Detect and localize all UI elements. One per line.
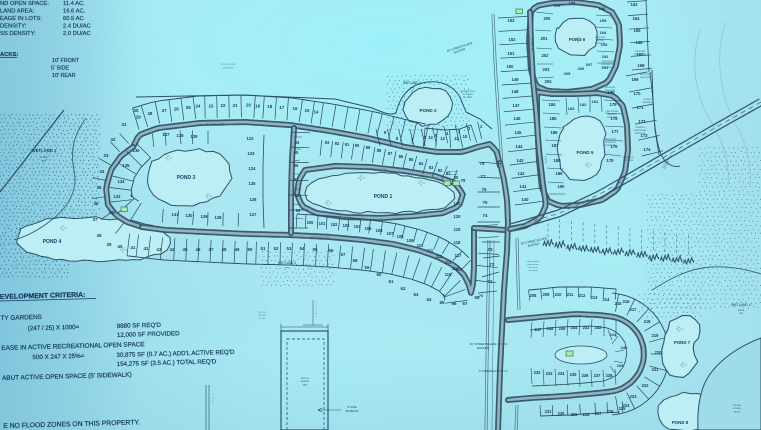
svg-text:149: 149 <box>512 77 520 82</box>
svg-text:148: 148 <box>512 89 520 94</box>
svg-text:206: 206 <box>578 66 585 71</box>
svg-text:xx xxxxxxx: xx xxxxxxx <box>463 94 475 96</box>
svg-text:57: 57 <box>341 252 346 257</box>
svg-text:EAGE IN LOTS:: EAGE IN LOTS: <box>0 16 42 22</box>
svg-text:xxxx xxx: xxxx xxx <box>568 314 581 317</box>
svg-text:15: 15 <box>305 108 310 113</box>
svg-text:228: 228 <box>583 412 591 417</box>
svg-text:236: 236 <box>582 373 590 378</box>
svg-text:181: 181 <box>592 99 599 104</box>
svg-text:235: 235 <box>570 372 578 377</box>
svg-text:xxxxxxxxx: xxxxxxxxx <box>595 37 606 39</box>
svg-text:36: 36 <box>94 201 99 206</box>
svg-text:164: 164 <box>633 16 641 21</box>
svg-text:208: 208 <box>530 293 538 298</box>
svg-text:199: 199 <box>554 3 561 8</box>
svg-text:BUFFER: BUFFER <box>477 346 490 350</box>
svg-text:56: 56 <box>329 248 334 253</box>
svg-text:201: 201 <box>541 36 549 41</box>
svg-text:42: 42 <box>144 246 149 251</box>
svg-text:211: 211 <box>567 292 574 297</box>
svg-text:142: 142 <box>518 171 526 176</box>
svg-text:12: 12 <box>440 136 445 141</box>
svg-text:194: 194 <box>600 30 607 35</box>
svg-text:146: 146 <box>514 116 522 121</box>
svg-text:188: 188 <box>554 158 562 163</box>
svg-text:33: 33 <box>104 153 109 158</box>
svg-text:136: 136 <box>133 148 141 153</box>
svg-text:xxxxx xx: xxxxx xx <box>530 39 533 52</box>
svg-text:213: 213 <box>591 295 599 300</box>
svg-text:183: 183 <box>568 106 575 111</box>
svg-text:9880 SF REQ'D: 9880 SF REQ'D <box>117 322 162 330</box>
svg-text:32: 32 <box>111 137 116 142</box>
svg-text:53: 53 <box>287 246 292 251</box>
svg-text:182: 182 <box>580 102 587 107</box>
svg-text:100: 100 <box>307 220 315 225</box>
svg-text:10' FRONT: 10' FRONT <box>52 58 80 64</box>
svg-text:243: 243 <box>583 325 591 330</box>
svg-text:WETLAND 1: WETLAND 1 <box>32 148 57 153</box>
svg-text:119: 119 <box>454 227 461 232</box>
svg-text:xx xxxxx: xx xxxxx <box>464 97 474 99</box>
svg-text:xxxx xxxxxxx: xxxx xxxxxxx <box>527 261 541 263</box>
svg-text:202: 202 <box>542 53 550 58</box>
svg-text:49: 49 <box>235 247 240 252</box>
svg-text:233: 233 <box>546 371 554 376</box>
svg-text:247: 247 <box>535 327 543 332</box>
svg-text:26: 26 <box>174 106 179 111</box>
svg-text:153: 153 <box>508 18 516 23</box>
svg-text:212: 212 <box>579 293 587 298</box>
svg-text:145: 145 <box>515 130 523 135</box>
svg-text:40: 40 <box>118 244 123 249</box>
svg-text:79: 79 <box>461 178 466 183</box>
svg-text:78: 78 <box>480 161 485 166</box>
svg-text:77: 77 <box>481 174 486 179</box>
svg-text:66: 66 <box>452 301 457 306</box>
svg-text:231: 231 <box>545 409 553 414</box>
svg-text:xxxxxxxxxx: xxxxxxxxxx <box>604 142 616 144</box>
svg-text:xxxxxxxxx: xxxxxxxxx <box>635 51 646 53</box>
svg-text:POND 3: POND 3 <box>177 175 196 181</box>
svg-text:239: 239 <box>617 363 624 368</box>
svg-text:39: 39 <box>107 242 112 247</box>
svg-text:75: 75 <box>483 200 488 205</box>
svg-text:43: 43 <box>157 247 162 252</box>
svg-text:44: 44 <box>170 247 175 252</box>
svg-text:xxxxxxxxx: xxxxxxxxx <box>595 43 606 45</box>
svg-text:TY GARDENS: TY GARDENS <box>0 314 42 322</box>
svg-text:67: 67 <box>463 301 468 306</box>
svg-text:95: 95 <box>294 150 299 155</box>
svg-text:94: 94 <box>295 140 300 145</box>
svg-text:19: 19 <box>255 103 260 108</box>
svg-text:237: 237 <box>594 373 602 378</box>
svg-text:152: 152 <box>509 37 517 42</box>
svg-text:88: 88 <box>377 148 382 153</box>
svg-text:55: 55 <box>313 247 318 252</box>
svg-text:xxx xxxx: xxx xxxx <box>258 315 268 317</box>
svg-text:83: 83 <box>429 165 434 170</box>
svg-text:45: 45 <box>183 247 188 252</box>
svg-text:POND 8: POND 8 <box>672 420 689 425</box>
svg-text:xxxxxxxxx: xxxxxxxxx <box>623 160 634 162</box>
svg-text:143: 143 <box>517 158 525 163</box>
svg-text:74: 74 <box>483 213 488 218</box>
svg-text:104: 104 <box>354 224 362 229</box>
svg-text:xxxxx xxx: xxxxx xxx <box>373 168 388 171</box>
svg-text:ND OPEN SPACE:: ND OPEN SPACE: <box>0 1 49 7</box>
svg-text:17: 17 <box>279 105 284 110</box>
svg-text:137: 137 <box>163 132 171 137</box>
svg-text:xxxxxxxxxxx: xxxxxxxxxxx <box>602 67 615 69</box>
svg-text:209: 209 <box>543 292 551 297</box>
svg-text:xxxxxxxx: xxxxxxxx <box>635 127 645 129</box>
svg-text:16: 16 <box>293 106 298 111</box>
svg-text:27: 27 <box>162 108 167 113</box>
svg-text:WETLAND 2: WETLAND 2 <box>403 81 421 85</box>
svg-text:xxxxxxxx: xxxxxxxx <box>223 66 234 69</box>
svg-text:xxxxxxxxx: xxxxxxxxx <box>635 133 646 135</box>
svg-text:xxxxxxxx: xxxxxxxx <box>605 93 615 95</box>
svg-text:31: 31 <box>122 122 127 127</box>
svg-text:175: 175 <box>607 158 615 163</box>
svg-text:198: 198 <box>569 0 576 5</box>
svg-text:186: 186 <box>551 130 559 135</box>
svg-text:14: 14 <box>314 109 319 114</box>
svg-text:238: 238 <box>606 373 614 378</box>
svg-text:108: 108 <box>397 234 405 239</box>
svg-text:xxxxxx: xxxxxx <box>504 295 507 306</box>
svg-text:ACKS:: ACKS: <box>0 52 18 58</box>
svg-text:123: 123 <box>248 151 256 156</box>
svg-text:127: 127 <box>250 212 258 217</box>
svg-text:99: 99 <box>296 208 301 213</box>
svg-text:102: 102 <box>331 222 339 227</box>
svg-text:34: 34 <box>100 169 105 174</box>
svg-text:129: 129 <box>201 214 209 219</box>
svg-text:192: 192 <box>602 54 609 59</box>
svg-text:DENSITY:: DENSITY: <box>0 24 27 30</box>
svg-text:37: 37 <box>93 217 98 222</box>
svg-text:48: 48 <box>222 247 227 252</box>
svg-text:223: 223 <box>630 394 638 399</box>
svg-text:111: 111 <box>427 248 434 253</box>
svg-text:POND 5: POND 5 <box>576 150 594 155</box>
svg-text:225: 225 <box>619 406 627 411</box>
svg-text:50: 50 <box>248 247 253 252</box>
svg-text:122: 122 <box>247 136 255 141</box>
svg-text:118: 118 <box>454 240 461 245</box>
svg-text:22: 22 <box>221 103 226 108</box>
svg-text:133: 133 <box>114 194 122 199</box>
svg-text:105: 105 <box>365 226 373 231</box>
svg-text:POND 6: POND 6 <box>569 37 586 42</box>
svg-text:500 X 247 X 25%=: 500 X 247 X 25%= <box>32 353 84 361</box>
svg-text:246: 246 <box>547 326 555 331</box>
svg-text:207: 207 <box>586 62 593 67</box>
svg-text:16.6 AC.: 16.6 AC. <box>63 9 86 15</box>
svg-text:13: 13 <box>428 135 433 140</box>
svg-text:xxxxxxxxx: xxxxxxxxx <box>607 117 618 119</box>
svg-text:xxxxxxx xxxx: xxxxxxx xxxx <box>205 122 225 125</box>
svg-text:130: 130 <box>186 213 194 218</box>
svg-text:SS DENSITY:: SS DENSITY: <box>0 31 36 37</box>
svg-text:2.4 DU/AC: 2.4 DU/AC <box>63 24 91 30</box>
svg-text:xxxxxxxxxxx: xxxxxxxxxxx <box>604 139 617 141</box>
svg-text:85: 85 <box>409 157 414 162</box>
svg-text:SETBACK: SETBACK <box>345 409 358 413</box>
svg-text:38: 38 <box>97 233 102 238</box>
svg-text:187: 187 <box>552 143 560 148</box>
svg-text:120: 120 <box>454 214 462 219</box>
svg-text:124: 124 <box>249 166 257 171</box>
svg-text:62: 62 <box>401 286 406 291</box>
svg-text:54: 54 <box>300 246 305 251</box>
svg-text:xxxx xx: xxxx xx <box>258 312 266 314</box>
svg-text:xxxxxxxxxxx: xxxxxxxxxxx <box>606 111 619 113</box>
svg-text:222: 222 <box>642 383 650 388</box>
svg-text:126: 126 <box>250 197 258 202</box>
svg-text:90: 90 <box>355 143 360 148</box>
svg-text:WETLAND 4: WETLAND 4 <box>731 303 751 307</box>
svg-text:60: 60 <box>377 272 382 277</box>
svg-text:177: 177 <box>612 129 620 134</box>
svg-text:97: 97 <box>294 177 299 182</box>
svg-text:240: 240 <box>621 345 628 350</box>
svg-text:xxxxxxxxx: xxxxxxxxx <box>640 74 651 76</box>
svg-text:xxxxxxxxxxx: xxxxxxxxxxx <box>634 130 647 132</box>
svg-text:51: 51 <box>261 246 266 251</box>
svg-text:28: 28 <box>147 111 152 116</box>
svg-text:21: 21 <box>233 103 238 108</box>
svg-text:xxxxxxxxxx: xxxxxxxxxx <box>622 157 634 159</box>
svg-text:52: 52 <box>274 246 279 251</box>
svg-text:150: 150 <box>507 64 515 69</box>
svg-text:96: 96 <box>294 163 299 168</box>
svg-text:92: 92 <box>335 141 340 146</box>
svg-text:110: 110 <box>417 243 424 248</box>
svg-text:xxx xx: xxx xx <box>734 410 741 413</box>
svg-text:107: 107 <box>387 231 395 236</box>
svg-text:141: 141 <box>520 184 528 189</box>
svg-text:xxxx xxxx: xxxx xxxx <box>528 267 538 269</box>
svg-text:70: 70 <box>479 293 483 298</box>
svg-text:232: 232 <box>534 370 542 375</box>
svg-text:xxxxxxxxxxx: xxxxxxxxxxx <box>634 54 647 56</box>
svg-text:215: 215 <box>615 301 623 306</box>
svg-text:xxxxxxxxxx: xxxxxxxxxx <box>604 145 616 147</box>
svg-text:73: 73 <box>488 247 493 252</box>
svg-text:LAND AREA:: LAND AREA: <box>0 9 35 15</box>
svg-text:58: 58 <box>353 258 358 263</box>
svg-text:xxxxxxxxx: xxxxxxxxx <box>640 77 651 79</box>
svg-text:POND 2: POND 2 <box>419 108 437 113</box>
svg-text:5' SIDE: 5' SIDE <box>51 66 70 72</box>
svg-text:132: 132 <box>109 210 117 215</box>
svg-text:(247 / 25) X 1000=: (247 / 25) X 1000= <box>28 324 80 332</box>
svg-text:35: 35 <box>97 185 102 190</box>
svg-text:229: 229 <box>571 412 579 417</box>
svg-text:93: 93 <box>325 140 330 145</box>
svg-text:29: 29 <box>136 114 141 119</box>
svg-text:72: 72 <box>490 262 495 267</box>
svg-text:168: 168 <box>638 63 646 68</box>
svg-text:216: 216 <box>623 299 631 304</box>
svg-text:xxx xxxxx: xxx xxxxx <box>528 270 538 272</box>
svg-text:103: 103 <box>343 223 351 228</box>
svg-text:218: 218 <box>644 319 652 324</box>
svg-text:227: 227 <box>595 411 603 416</box>
svg-text:219: 219 <box>652 333 660 338</box>
svg-text:205: 205 <box>564 71 571 76</box>
svg-text:76: 76 <box>482 187 487 192</box>
svg-text:115: 115 <box>445 272 452 277</box>
svg-text:xxxxxxxxxx: xxxxxxxxxx <box>642 102 654 104</box>
svg-text:xxxxxxx xxx: xxxxxxx xxx <box>311 236 329 240</box>
svg-text:89: 89 <box>366 145 371 150</box>
svg-text:169: 169 <box>632 77 640 82</box>
svg-text:64: 64 <box>427 297 432 302</box>
svg-text:47: 47 <box>209 247 214 252</box>
svg-text:140: 140 <box>522 197 530 202</box>
svg-text:214: 214 <box>603 297 611 302</box>
svg-text:91: 91 <box>345 142 350 147</box>
svg-text:106: 106 <box>376 228 384 233</box>
svg-text:113: 113 <box>445 260 452 265</box>
svg-text:179: 179 <box>610 102 618 107</box>
svg-text:234: 234 <box>558 371 566 376</box>
svg-text:POND 4: POND 4 <box>43 239 62 245</box>
svg-text:174: 174 <box>644 147 652 152</box>
svg-text:200: 200 <box>544 16 552 21</box>
svg-text:xxxxxxxx: xxxxxxxx <box>643 99 653 101</box>
svg-text:25: 25 <box>186 105 191 110</box>
svg-text:147: 147 <box>513 103 521 108</box>
svg-text:109: 109 <box>407 238 415 243</box>
svg-text:xxxxxx xxx: xxxxxx xxx <box>447 171 458 173</box>
svg-text:86: 86 <box>399 154 404 159</box>
svg-text:xxxxxxxxx: xxxxxxxxx <box>605 90 616 92</box>
svg-text:101: 101 <box>319 221 327 226</box>
svg-text:185: 185 <box>550 116 558 121</box>
svg-text:242: 242 <box>595 325 603 330</box>
svg-text:114: 114 <box>452 266 459 271</box>
svg-text:170: 170 <box>634 91 642 96</box>
svg-text:210: 210 <box>555 292 563 297</box>
svg-text:xxxxxxxxx: xxxxxxxxx <box>605 87 616 89</box>
svg-text:190: 190 <box>558 184 566 189</box>
svg-text:xxxxxxx: xxxxxxx <box>596 40 605 42</box>
svg-text:POND 1: POND 1 <box>374 194 393 200</box>
svg-text:230: 230 <box>558 411 566 416</box>
svg-text:10: 10 <box>463 134 468 139</box>
svg-text:41: 41 <box>131 245 136 250</box>
svg-text:125: 125 <box>249 181 257 186</box>
svg-text:WETLAND 3: WETLAND 3 <box>278 261 296 265</box>
svg-text:244: 244 <box>571 325 579 330</box>
svg-text:203: 203 <box>543 67 551 72</box>
svg-text:139: 139 <box>191 134 199 139</box>
svg-text:POND 7: POND 7 <box>674 340 691 345</box>
svg-text:xx xxx: xx xxx <box>259 318 266 320</box>
svg-text:46: 46 <box>196 247 201 252</box>
svg-text:195: 195 <box>600 18 607 23</box>
svg-text:151: 151 <box>508 51 516 56</box>
svg-text:121: 121 <box>454 201 462 206</box>
svg-text:60.5 AC: 60.5 AC <box>63 16 84 22</box>
svg-text:2.0 DU/AC: 2.0 DU/AC <box>63 31 91 37</box>
svg-text:24: 24 <box>195 104 200 109</box>
svg-text:10' REAR: 10' REAR <box>52 73 76 79</box>
svg-text:112: 112 <box>436 254 443 259</box>
svg-text:20: 20 <box>246 103 251 108</box>
svg-text:63: 63 <box>414 292 419 297</box>
svg-text:135: 135 <box>123 163 131 168</box>
svg-text:87: 87 <box>388 151 393 156</box>
svg-text:189: 189 <box>556 171 564 176</box>
svg-text:xxxxxxxx: xxxxxxxx <box>607 114 617 116</box>
svg-text:204: 204 <box>545 79 553 84</box>
svg-text:144: 144 <box>516 144 524 149</box>
svg-text:23: 23 <box>208 103 213 108</box>
svg-text:163: 163 <box>631 2 639 7</box>
svg-text:5' SIDEWALK: 5' SIDEWALK <box>479 369 497 373</box>
svg-text:184: 184 <box>549 102 557 107</box>
svg-text:xxxxxxxxxxx: xxxxxxxxxxx <box>602 61 615 63</box>
svg-text:11.4 AC.: 11.4 AC. <box>63 1 85 7</box>
svg-text:30: 30 <box>134 108 139 113</box>
svg-text:xxxxxxx xxx: xxxxxxx xxx <box>527 264 539 266</box>
svg-text:59: 59 <box>365 265 370 270</box>
svg-text:61: 61 <box>389 279 394 284</box>
svg-text:84: 84 <box>419 161 424 166</box>
svg-text:128: 128 <box>215 215 223 220</box>
svg-text:x xxx xxxx: x xxx xxxx <box>447 174 458 176</box>
svg-text:xxxxx: xxxxx <box>544 156 547 165</box>
svg-text:82: 82 <box>438 168 443 173</box>
svg-text:226: 226 <box>607 409 615 414</box>
svg-text:xxxxxxxx xxx x: xxxxxxxx xxx x <box>460 91 476 93</box>
svg-text:65: 65 <box>440 300 445 305</box>
svg-text:134: 134 <box>118 179 126 184</box>
svg-text:xxxx: xxxx <box>303 383 309 386</box>
svg-text:245: 245 <box>559 326 567 331</box>
svg-text:196: 196 <box>599 6 606 11</box>
svg-text:xxxxxxxxxxxx: xxxxxxxxxxxx <box>601 64 616 66</box>
svg-text:18: 18 <box>267 104 272 109</box>
